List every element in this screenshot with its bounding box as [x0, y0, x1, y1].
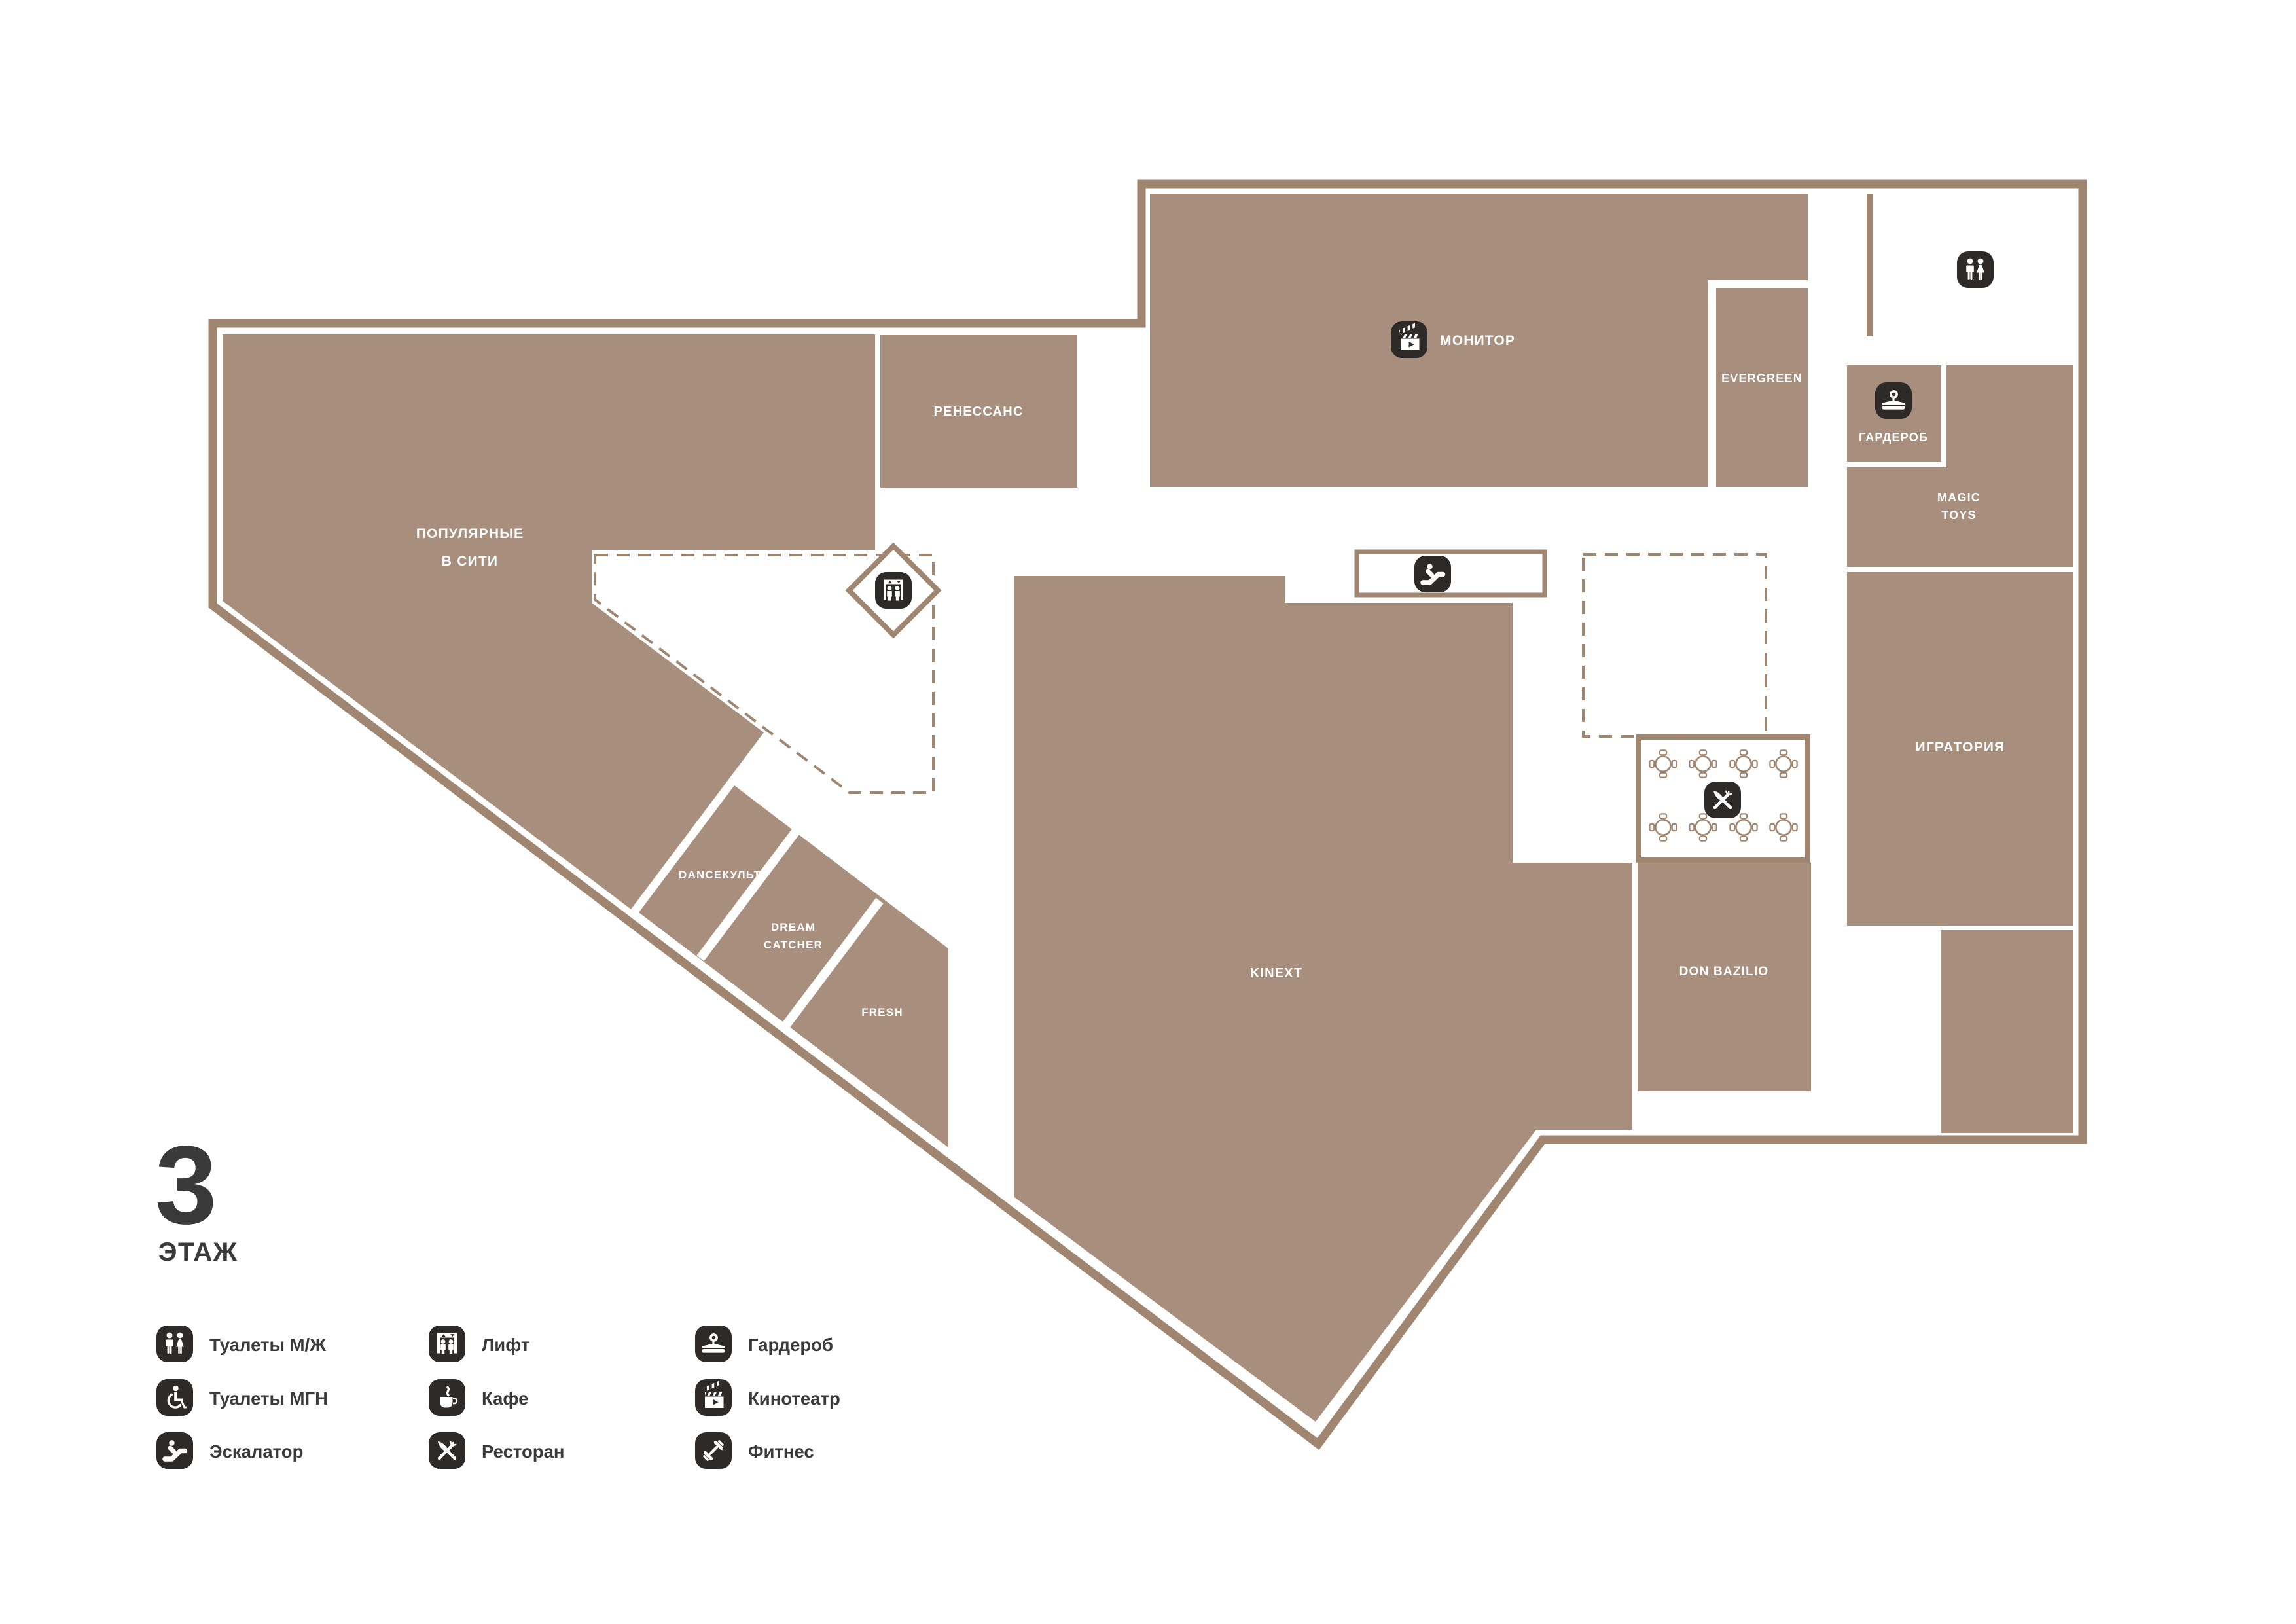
svg-text:3: 3 — [155, 1123, 217, 1248]
svg-text:DON BAZILIO: DON BAZILIO — [1679, 965, 1769, 979]
svg-text:ПОПУЛЯРНЫЕ: ПОПУЛЯРНЫЕ — [416, 526, 524, 541]
svg-text:EVERGREEN: EVERGREEN — [1721, 372, 1803, 385]
svg-text:MAGIC: MAGIC — [1937, 491, 1981, 504]
svg-text:В СИТИ: В СИТИ — [442, 554, 498, 569]
svg-text:Фитнес: Фитнес — [748, 1441, 814, 1462]
svg-text:KINEXT: KINEXT — [1250, 966, 1303, 981]
svg-text:FRESH: FRESH — [861, 1006, 903, 1019]
svg-text:ЭТАЖ: ЭТАЖ — [158, 1238, 238, 1267]
svg-text:CATCHER: CATCHER — [764, 939, 823, 951]
svg-text:МОНИТОР: МОНИТОР — [1440, 333, 1515, 348]
svg-text:Гардероб: Гардероб — [748, 1335, 833, 1355]
svg-text:Туалеты М/Ж: Туалеты М/Ж — [209, 1335, 326, 1355]
svg-text:Кафе: Кафе — [482, 1388, 528, 1409]
svg-text:ИГРАТОРИЯ: ИГРАТОРИЯ — [1916, 740, 2005, 755]
svg-text:TOYS: TOYS — [1941, 509, 1976, 522]
svg-text:Туалеты МГН: Туалеты МГН — [209, 1388, 328, 1409]
svg-text:Ресторан: Ресторан — [482, 1441, 565, 1462]
svg-text:ГАРДЕРОБ: ГАРДЕРОБ — [1859, 431, 1928, 444]
svg-text:РЕНЕССАНС: РЕНЕССАНС — [934, 405, 1024, 419]
svg-text:DANCEКУЛЬТ: DANCEКУЛЬТ — [679, 869, 761, 881]
svg-text:Эскалатор: Эскалатор — [209, 1441, 303, 1462]
svg-text:DREAM: DREAM — [771, 921, 816, 933]
svg-text:Кинотеатр: Кинотеатр — [748, 1388, 840, 1409]
svg-text:Лифт: Лифт — [482, 1335, 529, 1355]
